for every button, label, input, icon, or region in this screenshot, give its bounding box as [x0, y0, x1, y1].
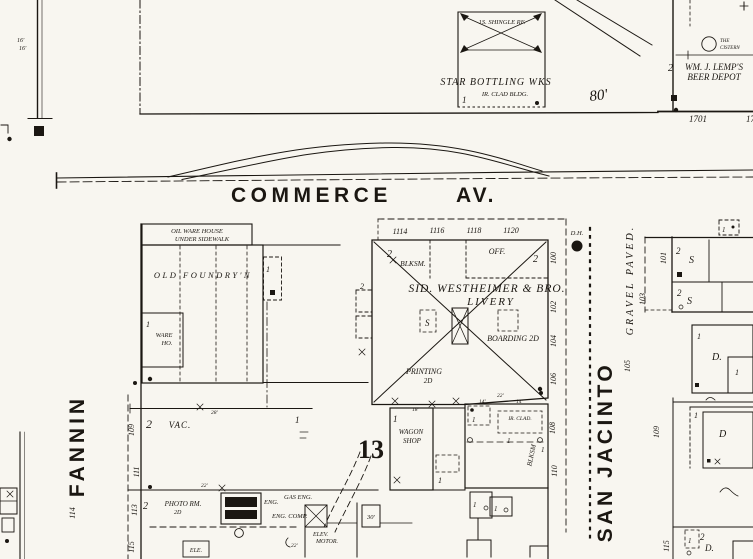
office-label: OFF.	[489, 247, 506, 256]
building-name: BEER DEPOT	[687, 72, 741, 82]
dim-label: 16'	[17, 38, 25, 44]
dim-label: 22'	[291, 543, 299, 549]
x-mark	[715, 459, 720, 464]
x-mark	[197, 404, 203, 410]
double-hydrant-label: D.H.	[570, 230, 584, 237]
fannin-frontage: 109 111 113 115	[127, 224, 141, 559]
block-number: 13	[358, 435, 384, 464]
boiler-icon	[225, 510, 257, 519]
dwelling-label: D	[718, 429, 727, 440]
story-count: 1	[688, 537, 692, 545]
east-block: 2 S 101 2 S 103 1 1 D. 1 105 1 D 109 1 2	[623, 220, 753, 559]
photo-building: 22' 2 PHOTO RM. 2D ENG. GAS ENG. ENG. CO…	[128, 452, 412, 557]
street-name-fannin: FANNIN	[66, 395, 89, 497]
brace-arrow-icon	[460, 45, 469, 53]
cistern-label: CISTERN	[720, 46, 740, 51]
building-name: LIVERY	[466, 296, 515, 308]
north-block	[140, 0, 658, 114]
brace-arrow-icon	[533, 13, 542, 21]
dim-label: 28'	[211, 410, 219, 416]
left-street-edge: 16' 16'	[1, 0, 52, 141]
story-count: 1	[722, 226, 726, 234]
westheimer-livery: 1114 1116 1118 1120 S 2 BLKSM. OFF. 2 SI…	[356, 219, 566, 532]
story-count: 1	[473, 501, 477, 509]
story-count: 1	[146, 320, 150, 329]
motor-label: MOTOR.	[315, 539, 338, 545]
printing-label: PRINTING	[405, 367, 442, 376]
story-count: 1	[507, 437, 511, 445]
story-count: 2	[668, 63, 673, 74]
address: 115	[662, 540, 671, 551]
street-name-san-jacinto: SAN JACINTO	[594, 362, 617, 542]
wagon-shop-row: 1 WAGON SHOP 1 IR. CLAD. 1 1 1 BLKSM 1 1	[390, 391, 548, 557]
dim-label: 16'	[19, 46, 27, 52]
dim-label: 22'	[201, 483, 209, 489]
building-name: OIL WARE HOUSE	[171, 228, 223, 235]
address: 104	[549, 335, 558, 347]
siding-track	[168, 143, 542, 177]
story-count: 2	[677, 288, 682, 298]
star-bottling-building: 1S. SHINGLE RF. STAR BOTTLING WKS IR. CL…	[440, 12, 551, 107]
address: 1114	[393, 227, 408, 236]
address: 108	[548, 422, 557, 434]
cistern-label: THE	[720, 39, 729, 44]
street-name-commerce: COMMERCE	[231, 184, 392, 207]
story-count: 2	[533, 254, 538, 265]
building-name: WM. J. LEMP'S	[685, 62, 743, 72]
blacksmith-label: BLKSM.	[400, 259, 426, 268]
story-count: 1	[393, 414, 398, 424]
address: 109	[127, 424, 136, 436]
building-name: PHOTO RM.	[164, 500, 202, 508]
address: 1120	[503, 226, 518, 235]
building-name: UNDER SIDEWALK	[175, 236, 230, 243]
engine-label: ENG. COMP.	[271, 513, 308, 520]
building-name: SID. WESTHEIMER & BRO.	[408, 283, 565, 295]
double-hydrant-icon	[572, 241, 583, 252]
lemp-beer-depot: THE CISTERN 2 WM. J. LEMP'S BEER DEPOT 1…	[658, 0, 753, 124]
story-count: 1	[494, 505, 498, 513]
x-mark	[7, 491, 13, 497]
siding-track	[182, 147, 549, 179]
address: 113	[130, 504, 139, 515]
floor-note: 2D	[174, 510, 182, 516]
oil-warehouse: OIL WARE HOUSE UNDER SIDEWALK	[142, 224, 340, 245]
building-name: WAGON	[399, 428, 424, 436]
printing-label: 2D	[424, 377, 433, 385]
yard-mark	[720, 488, 738, 496]
store-label: S	[689, 255, 694, 266]
building-name: STAR BOTTLING WKS	[440, 77, 551, 88]
address: 1116	[430, 226, 445, 235]
rail-spur	[555, 0, 640, 56]
story-count: 1	[472, 416, 476, 424]
x-mark	[392, 398, 398, 404]
san-jacinto-street: D.H. SAN JACINTO GRAVEL PAVED.	[548, 225, 636, 559]
story-count: 1	[438, 476, 442, 485]
dwelling-label: D.	[704, 543, 714, 553]
paving-note: GRAVEL PAVED.	[625, 225, 636, 335]
address: 109	[652, 426, 661, 438]
sanborn-insurance-map: 16' 16' 1S. SHINGLE RF. STAR BOTTLING WK…	[0, 0, 753, 559]
address: 101	[659, 252, 668, 264]
story-count: 1	[697, 332, 701, 341]
story-count: 1	[295, 415, 300, 425]
story-count: 1	[541, 446, 545, 454]
story-count: 2	[143, 501, 148, 512]
story-count: 1	[266, 265, 270, 274]
railroad-tracks	[57, 143, 753, 188]
address: 17	[746, 114, 753, 124]
outbuilding-label: ELE.	[189, 548, 202, 554]
address: 115	[127, 541, 136, 552]
building-name: SHOP	[403, 437, 422, 445]
address: 106	[549, 373, 558, 385]
address: 111	[132, 467, 141, 478]
address: 105	[623, 360, 632, 372]
dwelling-label: D.	[711, 352, 722, 363]
x-mark	[390, 257, 396, 263]
story-count: 1	[694, 411, 698, 420]
boiler-icon	[225, 497, 257, 507]
street-name-commerce-av: AV.	[456, 184, 497, 207]
address: 1118	[467, 226, 482, 235]
story-count: 2	[360, 282, 364, 291]
engine-label: ENG.	[263, 499, 279, 506]
story-count: 2	[700, 532, 705, 542]
engine-label: GAS ENG.	[284, 494, 313, 501]
cistern-icon	[702, 37, 716, 51]
fannin-street: FANNIN 114	[0, 395, 89, 559]
vacant-lot: 28' 2 VAC. 1	[130, 381, 312, 438]
blacksmith-label: BLKSM	[525, 442, 538, 466]
construction-note: IR. CLAD.	[507, 416, 531, 422]
brace-arrow-icon	[533, 45, 542, 53]
story-count: 2	[146, 417, 152, 431]
building-name: WARE	[156, 332, 173, 339]
building-name: OLD FOUNDRY'N	[154, 270, 252, 280]
x-mark	[359, 349, 365, 355]
x-mark	[453, 398, 459, 404]
motor-label: ELEV.	[312, 532, 329, 538]
address: 1701	[689, 114, 707, 124]
construction-note: IR. CLAD BLDG.	[481, 91, 529, 98]
address: 103	[638, 293, 647, 305]
skylight	[498, 310, 518, 331]
store-label: S	[687, 296, 692, 307]
dim-label: 22'	[497, 393, 505, 399]
building-name: HO.	[160, 340, 172, 347]
address: 110	[550, 465, 559, 476]
dim-label: 30'	[366, 514, 376, 521]
old-foundry: OLD FOUNDRY'N 1 WARE HO. 1	[142, 245, 368, 407]
brace-arrow-icon	[460, 13, 469, 21]
stable-label: S	[425, 318, 430, 328]
address: 100	[549, 252, 558, 264]
story-count: 1	[735, 368, 739, 377]
x-mark	[394, 477, 400, 483]
roof-note: 1S. SHINGLE RF.	[479, 19, 526, 26]
story-count: 2	[676, 246, 681, 256]
lot-label: VAC.	[169, 420, 192, 430]
boarding-label: BOARDING 2D	[487, 334, 539, 343]
street-width-dim: 80'	[589, 87, 610, 105]
address: 102	[549, 301, 558, 313]
tank-icon	[235, 529, 244, 538]
address: 114	[68, 507, 77, 518]
hydrant-block	[34, 126, 44, 136]
story-count: 1	[462, 95, 467, 105]
